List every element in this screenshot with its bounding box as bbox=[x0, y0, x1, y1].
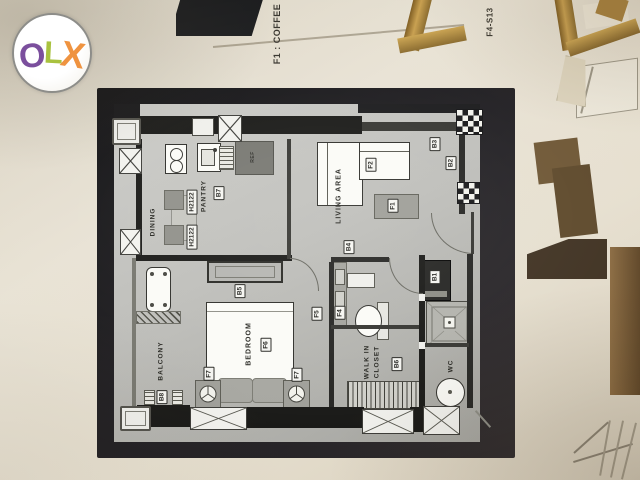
tag-b2: B2 bbox=[446, 156, 457, 170]
shower-stall bbox=[426, 301, 473, 347]
room-label-balcony: BALCONY bbox=[158, 341, 165, 380]
wall bbox=[467, 254, 473, 408]
room-label-bedroom: BEDROOM bbox=[246, 322, 253, 366]
sketch-rack-line bbox=[621, 423, 636, 480]
nightstand-lamp bbox=[283, 380, 310, 408]
tag-b5: B5 bbox=[235, 284, 246, 298]
tag-f7-a: F7 bbox=[204, 367, 215, 381]
column-marker bbox=[218, 115, 242, 142]
note-box bbox=[347, 273, 375, 288]
tag-b8: B8 bbox=[157, 390, 168, 404]
tag-f6: F6 bbox=[261, 338, 272, 352]
window-icon bbox=[190, 407, 247, 430]
console-desk bbox=[207, 261, 283, 283]
tag-h2122-b: H2122 bbox=[187, 224, 198, 249]
dish-rack-icon bbox=[219, 146, 234, 170]
tag-f7-b: F7 bbox=[292, 368, 303, 382]
balcony-lounge-chair bbox=[146, 267, 171, 312]
wall bbox=[244, 407, 364, 428]
ledge-box bbox=[112, 118, 141, 145]
wall bbox=[331, 325, 419, 329]
stove-icon bbox=[165, 144, 187, 174]
wall-gap bbox=[419, 294, 425, 301]
room-label-pantry: PANTRY bbox=[201, 180, 208, 212]
column-checker bbox=[457, 182, 480, 204]
brown-plank bbox=[610, 247, 640, 395]
brown-furniture bbox=[527, 239, 607, 279]
tag-h2122-a: H2122 bbox=[187, 189, 198, 214]
column-marker bbox=[119, 148, 142, 174]
tag-b4: B4 bbox=[344, 240, 355, 254]
tag-f1: F1 bbox=[388, 199, 399, 213]
wall bbox=[362, 122, 462, 131]
tag-b7: B7 bbox=[214, 186, 225, 200]
sketch-lampshade bbox=[556, 55, 590, 107]
fridge-label: REF bbox=[250, 151, 256, 163]
column-marker bbox=[120, 229, 141, 255]
pillow bbox=[218, 378, 253, 403]
wall bbox=[142, 255, 292, 261]
wall bbox=[287, 139, 291, 259]
wall bbox=[331, 257, 389, 262]
tag-f4: F4 bbox=[335, 306, 346, 320]
tag-b3: B3 bbox=[430, 137, 441, 151]
grille-mark bbox=[144, 390, 155, 406]
pillow bbox=[252, 378, 287, 403]
tag-f5: F5 bbox=[312, 307, 323, 321]
room-label-dining: DINING bbox=[150, 208, 157, 237]
wall bbox=[329, 262, 334, 408]
dark-frame-corner bbox=[176, 0, 264, 36]
grille-mark bbox=[172, 390, 183, 406]
dining-chair bbox=[164, 190, 184, 210]
tag-b1: B1 bbox=[430, 270, 441, 284]
column-checker bbox=[456, 109, 483, 135]
balcony-rail bbox=[132, 258, 136, 408]
window-icon bbox=[423, 406, 460, 435]
wall bbox=[423, 343, 469, 347]
dining-chair bbox=[164, 225, 184, 245]
wall bbox=[138, 116, 362, 134]
nightstand-lamp bbox=[195, 380, 221, 408]
toilet-bowl bbox=[355, 305, 382, 337]
balcony-divider bbox=[136, 311, 181, 324]
window-icon bbox=[362, 409, 414, 434]
olx-letter-x: X bbox=[58, 35, 87, 74]
room-label-wc: WC bbox=[448, 360, 455, 373]
room-label-living: LIVING AREA bbox=[336, 168, 343, 224]
closet-label-line2: CLOSET bbox=[373, 346, 380, 378]
caption-unit-code: F4-S13 bbox=[486, 7, 495, 36]
listing-photo: F1 : COFFEE F4-S13 O L X bbox=[0, 0, 640, 480]
entrance-door-leaf bbox=[471, 212, 474, 254]
room-label-closet: WALK IN CLOSET bbox=[362, 345, 382, 379]
brown-furniture bbox=[552, 164, 598, 238]
caption-coffee: F1 : COFFEE bbox=[272, 4, 282, 65]
olx-watermark: O L X bbox=[12, 13, 92, 93]
tag-b6: B6 bbox=[392, 357, 403, 371]
sink-icon bbox=[197, 143, 221, 172]
tag-f2: F2 bbox=[366, 158, 377, 172]
wall-gap bbox=[419, 342, 425, 349]
closet-shelving bbox=[347, 381, 421, 409]
wash-basin bbox=[436, 378, 465, 407]
wall-gap bbox=[192, 118, 214, 136]
ledge-box bbox=[120, 406, 151, 431]
closet-label-line1: WALK IN bbox=[363, 345, 370, 379]
